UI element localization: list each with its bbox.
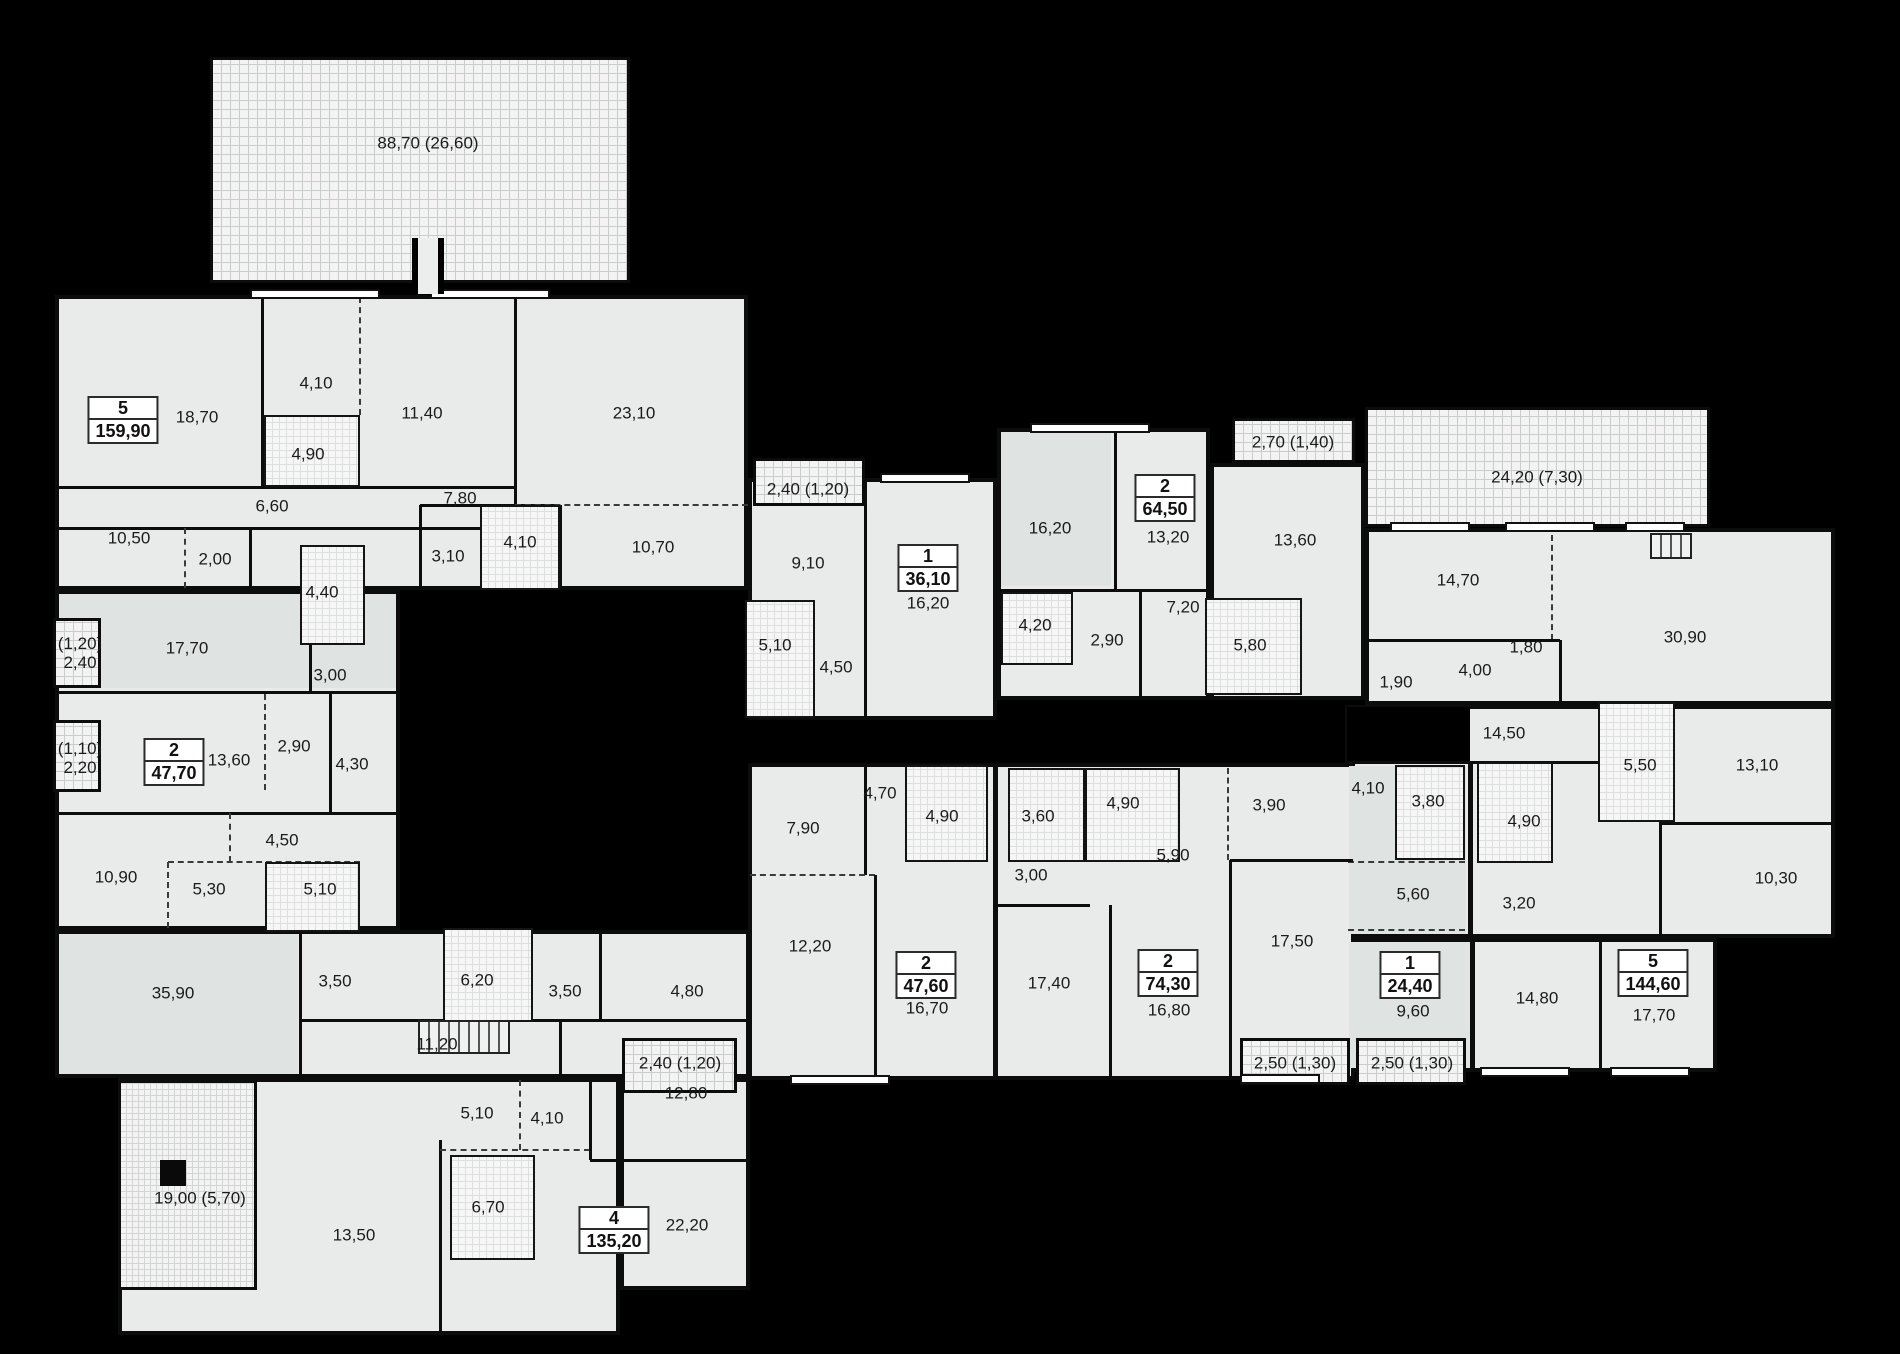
apartment-rooms-count: 2 <box>1136 476 1193 498</box>
room-area-label: 18,70 <box>176 407 219 426</box>
room-area-label: 16,80 <box>1148 1000 1191 1019</box>
window <box>1390 522 1470 532</box>
room-area-label: 17,40 <box>1028 973 1071 992</box>
room-area-label: 3,50 <box>548 981 581 1000</box>
room-tint <box>59 934 298 1074</box>
apartment-badge: 5159,90 <box>87 396 158 444</box>
wall <box>439 1140 442 1333</box>
room-area-label: 11,20 <box>416 1034 457 1053</box>
room-area-label: 11,40 <box>401 403 442 422</box>
wall-dashed <box>184 528 188 588</box>
apartment-total-area: 64,50 <box>1136 498 1193 520</box>
wall-dashed <box>167 862 171 928</box>
room-area-label: (1,10) 2,20 <box>58 739 102 777</box>
room-area-label: 13,50 <box>333 1225 376 1244</box>
room-area-label: 14,70 <box>1437 570 1480 589</box>
wall <box>1347 761 1598 764</box>
building-block <box>1365 528 1835 705</box>
wall <box>329 692 332 813</box>
apartment-badge: 136,10 <box>897 544 958 592</box>
room-area-label: 3,60 <box>1021 806 1054 825</box>
room-area-label: 10,90 <box>95 867 138 886</box>
column <box>160 1160 186 1186</box>
apartment-badge: 5144,60 <box>1617 949 1688 997</box>
room-area-label: 2,90 <box>277 736 310 755</box>
void-patch <box>1347 707 1470 762</box>
bathroom-tiled <box>1395 765 1465 860</box>
wall-dashed <box>1227 768 1231 860</box>
room-area-label: 3,90 <box>1252 795 1285 814</box>
wall <box>299 932 302 1076</box>
room-area-label: 4,50 <box>819 657 852 676</box>
room-area-label: 17,70 <box>1633 1005 1676 1024</box>
wall <box>309 645 312 692</box>
wall <box>1229 860 1232 1078</box>
room-area-label: 6,70 <box>471 1197 504 1216</box>
wall <box>1139 592 1142 698</box>
wall-dashed <box>440 1149 590 1153</box>
room-area-label: 1,80 <box>1509 637 1542 656</box>
room-area-label: 2,70 (1,40) <box>1252 432 1334 451</box>
room-area-label: 4,40 <box>305 582 338 601</box>
room-area-label: 14,80 <box>1516 988 1559 1007</box>
window <box>790 1075 890 1085</box>
apartment-badge: 274,30 <box>1137 949 1198 997</box>
apartment-badge: 247,70 <box>143 738 204 786</box>
room-area-label: 24,20 (7,30) <box>1491 467 1583 486</box>
room-area-label: 9,60 <box>1396 1001 1429 1020</box>
apartment-total-area: 24,40 <box>1381 975 1438 997</box>
room-area-label: 16,70 <box>906 998 949 1017</box>
room-area-label: 4,10 <box>1351 778 1384 797</box>
window <box>430 289 550 299</box>
apartment-total-area: 47,70 <box>145 762 202 784</box>
wall-dashed <box>1551 535 1555 640</box>
apartment-rooms-count: 2 <box>145 740 202 762</box>
apartment-rooms-count: 5 <box>89 398 156 420</box>
apartment-rooms-count: 1 <box>1381 953 1438 975</box>
window <box>880 473 970 483</box>
room-area-label: 4,50 <box>265 830 298 849</box>
wall <box>57 691 398 694</box>
room-area-label: 23,10 <box>613 403 656 422</box>
window <box>1505 522 1595 532</box>
room-area-label: 12,80 <box>665 1083 708 1102</box>
room-area-label: 17,50 <box>1271 931 1314 950</box>
room-area-label: 5,90 <box>1156 845 1189 864</box>
room-area-label: 5,10 <box>758 635 791 654</box>
apartment-total-area: 36,10 <box>899 568 956 590</box>
room-area-label: 13,60 <box>208 750 251 769</box>
wall <box>57 812 398 815</box>
room-area-label: 4,90 <box>1106 793 1139 812</box>
room-area-label: 4,10 <box>299 373 332 392</box>
wall <box>590 1159 748 1162</box>
wall <box>249 528 252 588</box>
room-area-label: 13,60 <box>1274 530 1317 549</box>
room-area-label: 3,50 <box>318 971 351 990</box>
room-area-label: 4,70 <box>863 783 896 802</box>
wall-dashed <box>229 813 233 862</box>
bathroom-tiled <box>745 600 815 718</box>
terrace-step <box>412 238 444 294</box>
wall <box>1468 762 1473 936</box>
wall <box>993 765 998 1078</box>
room-area-label: 3,00 <box>313 665 346 684</box>
room-area-label: 2,00 <box>198 549 231 568</box>
wall <box>514 297 517 505</box>
room-area-label: 1,90 <box>1379 672 1412 691</box>
wall <box>559 1020 562 1076</box>
apartment-badge: 124,40 <box>1379 951 1440 999</box>
wall <box>874 875 877 1078</box>
room-area-label: 13,10 <box>1736 755 1779 774</box>
stairs-icon <box>1650 533 1692 559</box>
room-area-label: 2,50 (1,30) <box>1254 1053 1336 1072</box>
wall <box>1470 940 1475 1070</box>
room-area-label: 4,10 <box>530 1108 563 1127</box>
wall-dashed <box>359 297 363 415</box>
apartment-rooms-count: 2 <box>1139 951 1196 973</box>
apartment-total-area: 159,90 <box>89 420 156 442</box>
room-area-label: 4,10 <box>503 532 536 551</box>
room-area-label: 88,70 (26,60) <box>377 133 478 152</box>
wall <box>1230 859 1353 862</box>
apartment-total-area: 144,60 <box>1619 973 1686 995</box>
wall <box>1559 640 1562 703</box>
wall <box>1599 940 1602 1070</box>
wall-dashed <box>1348 861 1465 865</box>
room-area-label: 4,20 <box>1018 615 1051 634</box>
apartment-badge: 247,60 <box>895 951 956 999</box>
room-area-label: 5,10 <box>460 1103 493 1122</box>
room-area-label: 3,80 <box>1411 791 1444 810</box>
room-area-label: 7,90 <box>786 818 819 837</box>
wall <box>599 932 602 1020</box>
room-area-label: 12,20 <box>789 936 832 955</box>
apartment-total-area: 74,30 <box>1139 973 1196 995</box>
room-area-label: 14,50 <box>1483 723 1526 742</box>
room-area-label: 17,70 <box>166 638 209 657</box>
window <box>1030 423 1150 433</box>
room-area-label: 3,00 <box>1014 865 1047 884</box>
wall <box>1660 822 1833 825</box>
room-area-label: 4,80 <box>670 981 703 1000</box>
wall <box>1109 905 1112 1078</box>
wall-dashed <box>264 694 268 790</box>
room-area-label: 19,00 (5,70) <box>154 1188 246 1207</box>
room-area-label: 5,30 <box>192 879 225 898</box>
room-area-label: 10,30 <box>1755 868 1798 887</box>
wall <box>419 505 422 588</box>
room-area-label: 6,20 <box>460 970 493 989</box>
wall <box>864 765 867 875</box>
room-area-label: 30,90 <box>1664 627 1707 646</box>
wall <box>997 904 1090 907</box>
room-area-label: 9,10 <box>791 553 824 572</box>
room-area-label: 4,30 <box>335 754 368 773</box>
room-area-label: 2,90 <box>1090 630 1123 649</box>
room-area-label: 10,70 <box>632 537 675 556</box>
apartment-rooms-count: 4 <box>580 1208 647 1230</box>
winter-garden-hatched <box>118 1080 257 1290</box>
wall <box>864 480 867 718</box>
window <box>1480 1067 1570 1077</box>
room-area-label: 16,20 <box>1029 518 1072 537</box>
window <box>1610 1067 1690 1077</box>
apartment-badge: 264,50 <box>1134 474 1195 522</box>
apartment-rooms-count: 5 <box>1619 951 1686 973</box>
room-area-label: 4,90 <box>925 806 958 825</box>
room-area-label: 6,60 <box>255 496 288 515</box>
room-area-label: 4,90 <box>1507 811 1540 830</box>
room-area-label: (1,20) 2,40 <box>58 634 102 672</box>
wall-dashed <box>519 1080 523 1150</box>
apartment-rooms-count: 2 <box>897 953 954 975</box>
window <box>1625 522 1685 532</box>
window <box>250 289 380 299</box>
room-area-label: 5,60 <box>1396 884 1429 903</box>
room-area-label: 10,50 <box>108 528 151 547</box>
room-area-label: 3,10 <box>431 546 464 565</box>
room-area-label: 5,10 <box>303 879 336 898</box>
room-tint <box>1001 432 1111 586</box>
room-area-label: 3,20 <box>1502 893 1535 912</box>
wall-dashed <box>750 874 875 878</box>
wall-dashed <box>1348 929 1465 933</box>
room-area-label: 16,20 <box>907 593 950 612</box>
room-area-label: 35,90 <box>152 983 195 1002</box>
room-area-label: 4,00 <box>1458 660 1491 679</box>
building-block <box>620 1078 750 1290</box>
floor-plan-canvas: 88,70 (26,60)18,704,1011,4023,104,906,60… <box>0 0 1900 1354</box>
apartment-rooms-count: 1 <box>899 546 956 568</box>
room-area-label: 2,40 (1,20) <box>767 479 849 498</box>
room-area-label: 2,40 (1,20) <box>639 1053 721 1072</box>
wall <box>589 1078 592 1160</box>
room-area-label: 2,50 (1,30) <box>1371 1053 1453 1072</box>
room-area-label: 4,90 <box>291 444 324 463</box>
room-area-label: 5,80 <box>1233 635 1266 654</box>
room-area-label: 22,20 <box>666 1215 709 1234</box>
room-area-label: 7,80 <box>443 488 476 507</box>
room-area-label: 7,20 <box>1166 597 1199 616</box>
apartment-badge: 4135,20 <box>578 1206 649 1254</box>
wall <box>1114 430 1117 590</box>
apartment-total-area: 135,20 <box>580 1230 647 1252</box>
room-area-label: 5,50 <box>1623 755 1656 774</box>
apartment-total-area: 47,60 <box>897 975 954 997</box>
room-area-label: 13,20 <box>1147 527 1190 546</box>
window <box>1240 1074 1320 1084</box>
